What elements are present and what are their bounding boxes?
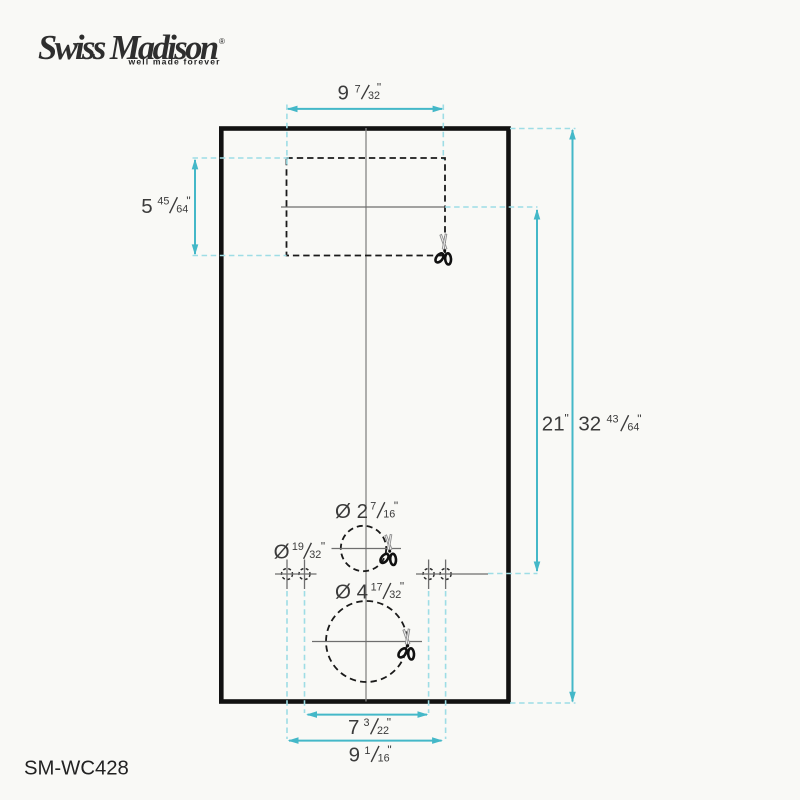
- svg-text:": ": [387, 743, 391, 757]
- svg-text:SM-WC428: SM-WC428: [24, 758, 129, 780]
- svg-text:": ": [377, 81, 381, 95]
- svg-text:7: 7: [370, 501, 376, 513]
- svg-text:Ø 2: Ø 2: [335, 500, 368, 523]
- svg-text:32: 32: [309, 549, 321, 561]
- svg-text:9: 9: [338, 82, 349, 105]
- svg-text:": ": [400, 580, 404, 594]
- svg-text:9: 9: [349, 743, 360, 766]
- svg-text:": ": [186, 194, 190, 208]
- svg-text:1: 1: [364, 745, 370, 757]
- svg-text:17: 17: [371, 581, 383, 593]
- svg-text:43: 43: [607, 414, 619, 426]
- svg-text:45: 45: [157, 196, 169, 208]
- svg-text:32: 32: [578, 413, 601, 436]
- svg-text:": ": [387, 715, 391, 729]
- svg-text:®: ®: [219, 37, 225, 46]
- svg-text:19: 19: [292, 541, 304, 553]
- svg-text:well made forever: well made forever: [128, 57, 222, 67]
- svg-text:21: 21: [542, 413, 565, 436]
- svg-text:": ": [321, 540, 325, 554]
- svg-text:": ": [637, 412, 641, 426]
- svg-text:Ø 4: Ø 4: [335, 581, 368, 604]
- svg-text:7: 7: [355, 83, 361, 95]
- svg-text:": ": [394, 499, 398, 513]
- svg-text:5: 5: [141, 195, 152, 218]
- svg-text:": ": [565, 412, 569, 426]
- svg-text:3: 3: [364, 717, 370, 729]
- svg-text:7: 7: [348, 716, 359, 739]
